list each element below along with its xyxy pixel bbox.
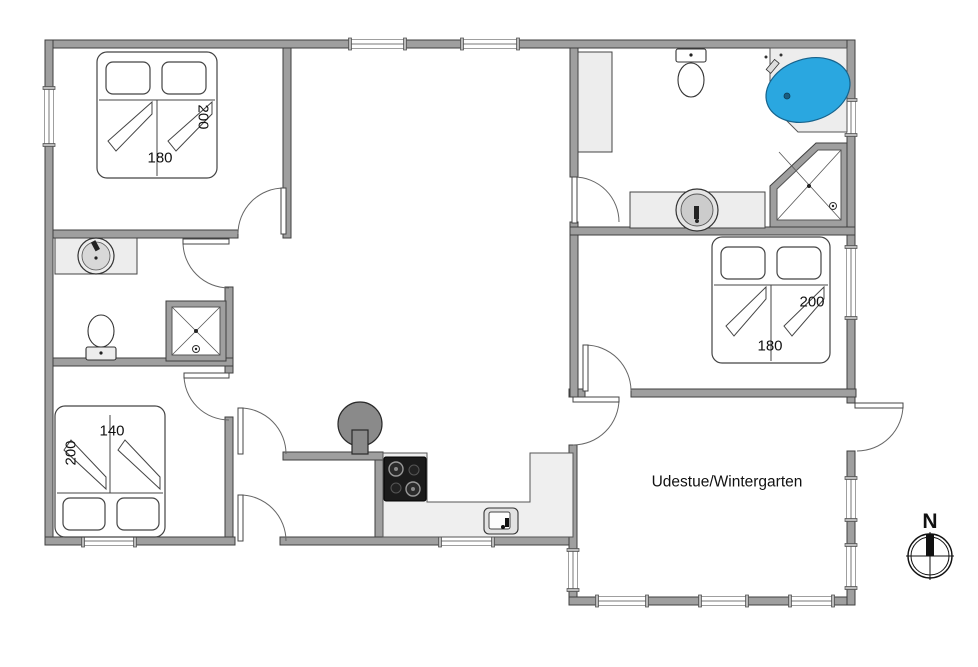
north-needle — [926, 534, 934, 556]
door-bedroom-top-left — [238, 188, 286, 234]
shower-cabin-icon — [770, 143, 847, 227]
bedroom-bottom-left: 140 200 — [55, 406, 165, 537]
bed-length-label: 200 — [195, 104, 212, 129]
bed-width-label: 140 — [99, 423, 124, 440]
toilet-icon — [86, 315, 116, 360]
bed-length-label: 200 — [799, 294, 824, 311]
window-right-bedroom — [845, 246, 857, 320]
door-entrance — [238, 495, 286, 541]
bed-width-label: 180 — [757, 338, 782, 355]
window-left — [43, 87, 55, 147]
corner-bathtub — [758, 47, 859, 133]
bathroom-cabinet — [578, 52, 612, 152]
door-bathroom-left — [183, 239, 229, 288]
floor-plan: 200 180 — [0, 0, 978, 667]
door-bedroom-bottom-left — [184, 373, 229, 420]
window-conservatory-right-2 — [845, 544, 857, 590]
door-living-to-conservatory — [573, 397, 619, 445]
shower-cabin-icon — [166, 301, 226, 361]
vanity-counter-right — [630, 189, 765, 231]
cooktop-icon — [384, 457, 426, 501]
window-conservatory-bottom-2 — [699, 595, 749, 607]
kitchen — [338, 402, 573, 537]
sink-icon — [78, 238, 114, 274]
door-bathroom-right — [572, 177, 619, 223]
bedroom-top-left: 200 180 — [97, 52, 217, 178]
conservatory: Udestue/Wintergarten — [652, 474, 803, 491]
north-label: N — [922, 510, 937, 533]
bed-length-label: 200 — [63, 440, 80, 465]
bathroom-right — [578, 47, 858, 231]
bedroom-right: 200 180 — [712, 237, 830, 363]
window-conservatory-bottom-3 — [789, 595, 835, 607]
toilet-icon — [676, 49, 706, 97]
window-conservatory-left — [567, 549, 579, 592]
window-conservatory-bottom-1 — [596, 595, 649, 607]
window-conservatory-right-1 — [845, 477, 857, 522]
door-bedroom-right — [583, 345, 631, 391]
compass: N — [906, 510, 954, 580]
window-top-2 — [461, 38, 520, 50]
door-hall-to-living — [238, 408, 286, 454]
bed-width-label: 180 — [147, 150, 172, 167]
door-conservatory-exterior — [855, 403, 903, 451]
bathroom-left — [55, 238, 226, 361]
conservatory-label: Udestue/Wintergarten — [652, 474, 803, 491]
window-top-1 — [349, 38, 407, 50]
wood-stove-icon — [338, 402, 382, 454]
kitchen-sink-icon — [484, 508, 518, 534]
floor-plan-page: 200 180 — [0, 0, 978, 667]
